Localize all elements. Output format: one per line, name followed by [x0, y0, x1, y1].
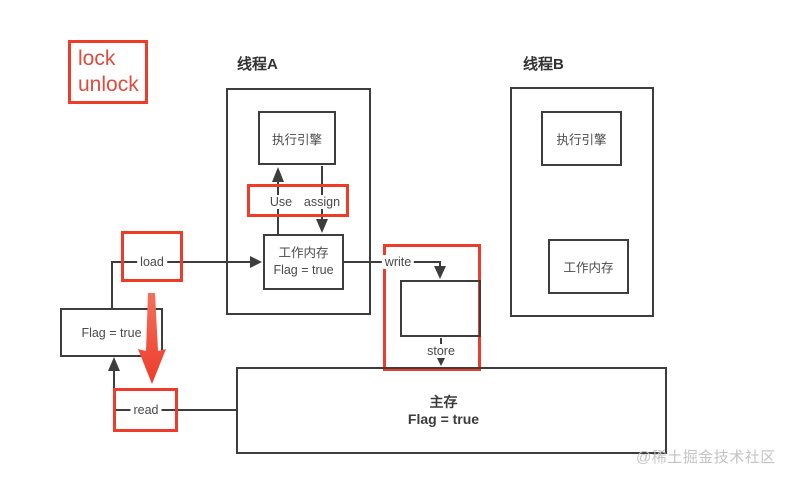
thread-a-execution-engine-box: 执行引擎 — [258, 111, 336, 165]
thread-b-working-memory-box: 工作内存 — [548, 239, 629, 294]
flag-value-label: Flag = true — [81, 326, 141, 340]
legend-unlock-label: unlock — [78, 72, 145, 98]
store-label: store — [424, 344, 458, 358]
main-memory-value: Flag = true — [408, 411, 479, 428]
flag-value-box: Flag = true — [60, 308, 163, 357]
thread-b-title: 线程B — [523, 53, 564, 74]
legend-lock-label: lock — [78, 46, 145, 72]
read-label: read — [130, 403, 161, 417]
write-label: write — [382, 255, 414, 269]
thread-a-working-memory-box: 工作内存 Flag = true — [263, 234, 344, 290]
thread-b-execution-engine-label: 执行引擎 — [556, 129, 606, 148]
thread-b-working-memory-label: 工作内存 — [563, 257, 613, 276]
jmm-diagram: lock unlock 线程A 执行引擎 Use assign 工作内存 Fla… — [0, 0, 804, 481]
watermark: @稀土掘金技术社区 — [636, 446, 776, 467]
thread-b-execution-engine-box: 执行引擎 — [541, 111, 622, 166]
load-label: load — [137, 255, 167, 269]
thread-a-working-memory-value: Flag = true — [273, 262, 333, 279]
main-memory-title: 主存 — [430, 394, 458, 411]
thread-a-working-memory-title: 工作内存 — [278, 245, 328, 262]
use-label: Use — [267, 195, 295, 209]
assign-label: assign — [301, 195, 343, 209]
main-memory-box: 主存 Flag = true — [236, 367, 667, 454]
store-buffer-box — [400, 280, 481, 337]
read-up-arrowhead-icon — [108, 357, 120, 371]
thread-a-title: 线程A — [237, 53, 278, 74]
thread-a-execution-engine-label: 执行引擎 — [272, 129, 322, 148]
lock-unlock-legend: lock unlock — [68, 40, 148, 104]
